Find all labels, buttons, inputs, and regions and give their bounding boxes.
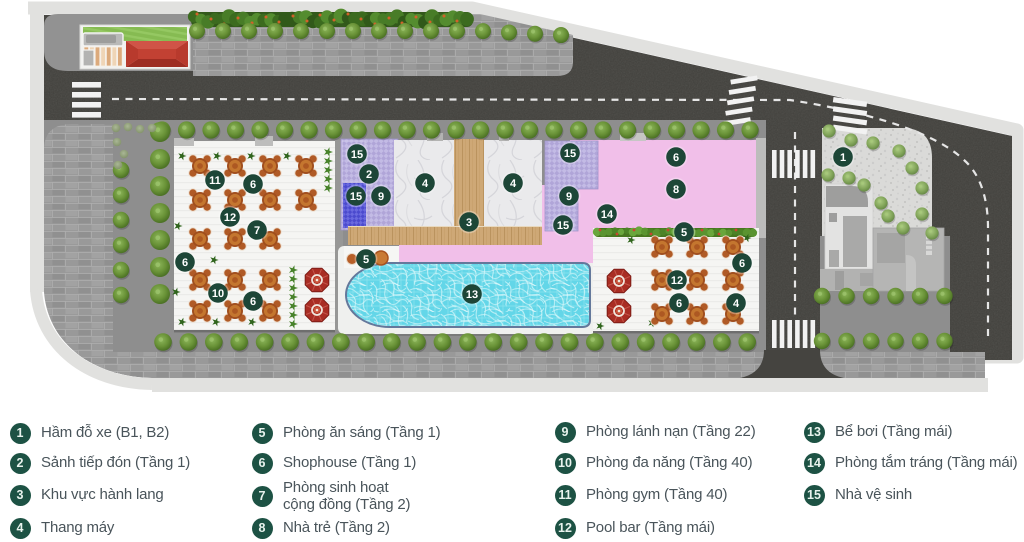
svg-text:12: 12 xyxy=(671,275,683,287)
svg-text:4: 4 xyxy=(422,178,429,190)
svg-text:13: 13 xyxy=(466,289,478,301)
svg-text:6: 6 xyxy=(250,296,256,308)
svg-text:4: 4 xyxy=(510,178,517,190)
svg-text:6: 6 xyxy=(182,257,188,269)
svg-text:6: 6 xyxy=(739,258,745,270)
svg-text:14: 14 xyxy=(601,209,614,221)
svg-text:8: 8 xyxy=(673,184,679,196)
svg-text:11: 11 xyxy=(209,175,221,187)
svg-text:15: 15 xyxy=(564,148,576,160)
svg-text:6: 6 xyxy=(250,179,256,191)
svg-text:15: 15 xyxy=(351,149,363,161)
svg-text:12: 12 xyxy=(224,212,236,224)
svg-text:1: 1 xyxy=(840,152,846,164)
svg-text:5: 5 xyxy=(363,254,369,266)
svg-text:4: 4 xyxy=(733,298,740,310)
svg-text:10: 10 xyxy=(212,288,224,300)
svg-text:5: 5 xyxy=(681,227,687,239)
svg-text:9: 9 xyxy=(378,191,384,203)
svg-text:6: 6 xyxy=(676,298,682,310)
svg-text:3: 3 xyxy=(466,217,472,229)
svg-text:15: 15 xyxy=(557,220,569,232)
svg-text:7: 7 xyxy=(254,225,260,237)
svg-text:15: 15 xyxy=(350,191,362,203)
svg-text:6: 6 xyxy=(673,152,679,164)
svg-text:9: 9 xyxy=(566,191,572,203)
svg-text:2: 2 xyxy=(366,169,372,181)
